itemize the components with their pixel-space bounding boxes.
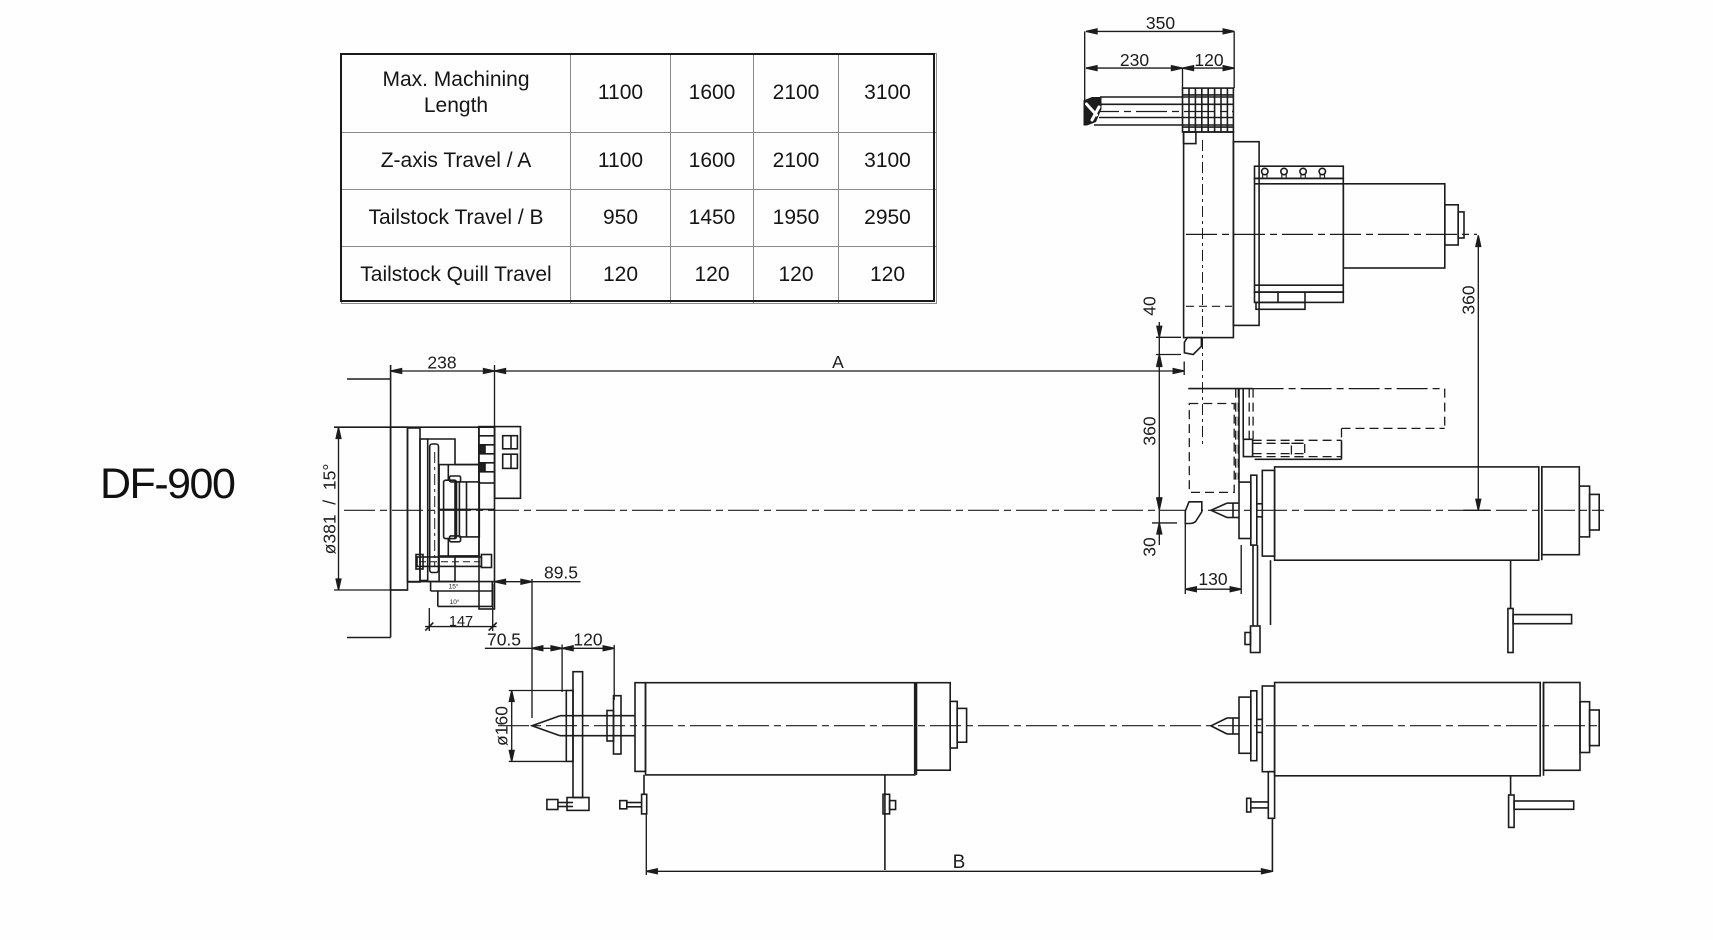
svg-text:ø160: ø160	[492, 706, 512, 746]
svg-text:15°: 15°	[449, 583, 459, 591]
svg-text:30: 30	[1140, 537, 1160, 557]
svg-text:ø381 / 15°: ø381 / 15°	[320, 464, 340, 555]
svg-text:360: 360	[1140, 416, 1160, 445]
svg-text:A: A	[832, 352, 844, 372]
svg-text:B: B	[953, 852, 966, 873]
svg-text:360: 360	[1459, 285, 1479, 314]
svg-text:238: 238	[427, 353, 456, 373]
svg-text:120: 120	[573, 630, 602, 650]
svg-text:10°: 10°	[450, 598, 460, 606]
svg-text:350: 350	[1146, 13, 1175, 33]
svg-text:230: 230	[1120, 50, 1149, 70]
svg-text:70.5: 70.5	[487, 630, 521, 650]
svg-text:147: 147	[449, 614, 473, 630]
svg-text:120: 120	[1194, 50, 1223, 70]
svg-text:89.5: 89.5	[544, 563, 578, 583]
svg-text:130: 130	[1198, 569, 1227, 589]
svg-text:40: 40	[1140, 296, 1160, 316]
